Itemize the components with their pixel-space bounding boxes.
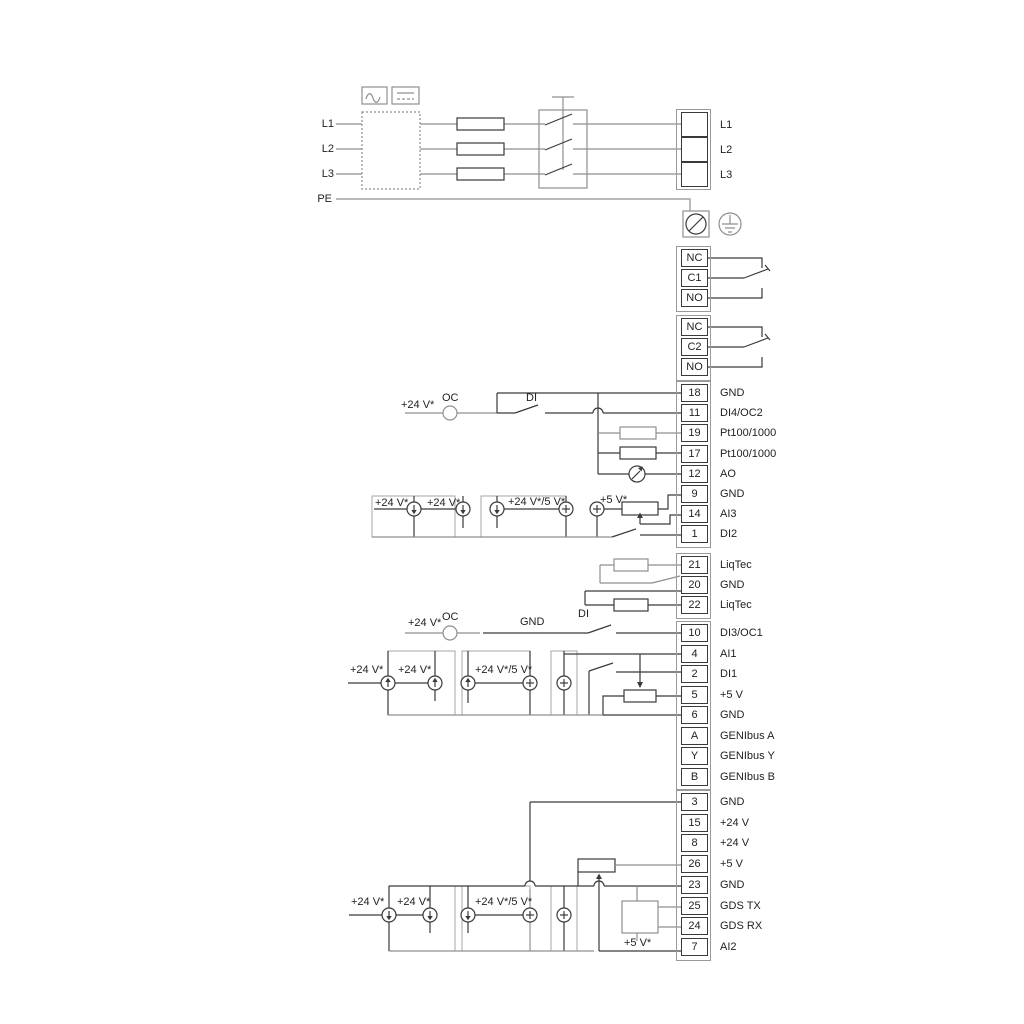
terminal-row: 5+5 V: [676, 686, 896, 704]
earth-symbol: [719, 213, 741, 235]
terminal-cell: A: [681, 727, 708, 745]
terminal-row: BGENIbus B: [676, 768, 896, 786]
terminal-cell: 5: [681, 686, 708, 704]
terminal-cell: 10: [681, 624, 708, 642]
terminal-label: GENIbus Y: [720, 750, 775, 762]
label-pe-in: PE: [310, 193, 332, 205]
terminal-row: 6GND: [676, 706, 896, 724]
terminal-cell: 19: [681, 424, 708, 442]
terminal-label: +5 V: [720, 858, 743, 870]
terminal-cell: 14: [681, 505, 708, 523]
label-plus24-ai1-2: +24 V*: [398, 664, 431, 676]
terminal-label: GND: [720, 579, 744, 591]
terminal-label: +5 V: [720, 689, 743, 701]
terminal-row: YGENIbus Y: [676, 747, 896, 765]
terminal-cell: NO: [681, 289, 708, 307]
label-plus24-di3: +24 V*: [408, 617, 441, 629]
label-plus24-ai3-2: +24 V*: [427, 497, 460, 509]
label-l2-in: L2: [312, 143, 334, 155]
terminal-cell: NC: [681, 318, 708, 336]
terminal-label: DI1: [720, 668, 737, 680]
terminal-cell: 18: [681, 384, 708, 402]
terminal-cell: 15: [681, 814, 708, 832]
terminal-cell: 4: [681, 645, 708, 663]
terminal-label: GND: [720, 709, 744, 721]
main-switch-blades: [545, 114, 572, 175]
label-plus24or5-ai3: +24 V*/5 V*: [508, 496, 565, 508]
label-oc-di3: OC: [442, 611, 459, 623]
terminal-label: AI3: [720, 508, 737, 520]
label-plus24or5-ai2: +24 V*/5 V*: [475, 896, 532, 908]
pt100-sensor-2: [598, 447, 683, 459]
terminal-row: 9GND: [676, 485, 896, 503]
terminal-label: L3: [720, 169, 732, 181]
terminal-row: 4AI1: [676, 645, 896, 663]
terminal-row: 22LiqTec: [676, 596, 896, 614]
ai1-potentiometer: [564, 654, 683, 715]
terminal-row: 10DI3/OC1: [676, 624, 896, 642]
terminal-cell: C2: [681, 338, 708, 356]
terminal-cell: [681, 137, 708, 162]
terminal-row: 19Pt100/1000: [676, 424, 896, 442]
label-di-di4: DI: [526, 392, 537, 404]
terminal-cell: 2: [681, 665, 708, 683]
fuses: [457, 118, 504, 180]
terminal-label: DI2: [720, 528, 737, 540]
label-plus24-ai2-2: +24 V*: [397, 896, 430, 908]
terminal-label: AO: [720, 468, 736, 480]
terminal-label: DI4/OC2: [720, 407, 763, 419]
terminal-label: AI2: [720, 941, 737, 953]
label-l1-in: L1: [312, 118, 334, 130]
terminal-label: +24 V: [720, 837, 749, 849]
terminal-cell: 24: [681, 917, 708, 935]
terminal-row: 15+24 V: [676, 814, 896, 832]
terminal-cell: 11: [681, 404, 708, 422]
label-di-di3: DI: [578, 608, 589, 620]
terminal-row: 17Pt100/1000: [676, 445, 896, 463]
terminal-cell: 6: [681, 706, 708, 724]
terminal-label: GND: [720, 879, 744, 891]
terminal-cell: 20: [681, 576, 708, 594]
terminal-row: L3: [676, 162, 896, 187]
terminal-cell: NO: [681, 358, 708, 376]
ac-symbol-box: [362, 87, 387, 104]
label-plus24-ai3-1: +24 V*: [375, 497, 408, 509]
terminal-row: 7AI2: [676, 938, 896, 956]
ai2-rail: [389, 881, 683, 886]
dc-symbol-box: [392, 87, 419, 104]
terminal-label: GND: [720, 488, 744, 500]
terminal-row: 24GDS RX: [676, 917, 896, 935]
terminal-row: NO: [676, 358, 896, 376]
gds-sensor: [622, 886, 683, 941]
terminal-cell: 12: [681, 465, 708, 483]
terminal-row: C2: [676, 338, 896, 356]
label-plus24-ai1-1: +24 V*: [350, 664, 383, 676]
liqtec-circuit: [585, 559, 683, 611]
terminal-cell: 26: [681, 855, 708, 873]
terminal-label: L1: [720, 119, 732, 131]
label-plus5-gds: +5 V*: [624, 937, 651, 949]
terminal-row: 1DI2: [676, 525, 896, 543]
analog-output-meter: [598, 466, 683, 482]
terminal-row: 11DI4/OC2: [676, 404, 896, 422]
terminal-cell: Y: [681, 747, 708, 765]
ai3-potentiometer: [622, 495, 683, 524]
terminal-label: LiqTec: [720, 559, 752, 571]
terminal-label: L2: [720, 144, 732, 156]
label-gnd-di3: GND: [520, 616, 544, 628]
pe-screw-terminal: [683, 211, 709, 237]
terminal-cell: 23: [681, 876, 708, 894]
label-plus24or5-ai1: +24 V*/5 V*: [475, 664, 532, 676]
label-plus24-ai2-1: +24 V*: [351, 896, 384, 908]
terminal-label: DI3/OC1: [720, 627, 763, 639]
terminal-row: 26+5 V: [676, 855, 896, 873]
terminal-row: 8+24 V: [676, 834, 896, 852]
terminal-row: 3GND: [676, 793, 896, 811]
terminal-row: NC: [676, 249, 896, 267]
terminal-label: +24 V: [720, 817, 749, 829]
terminal-cell: 3: [681, 793, 708, 811]
label-plus5-ai3: +5 V*: [600, 494, 627, 506]
terminal-row: 2DI1: [676, 665, 896, 683]
terminal-cell: [681, 112, 708, 137]
terminal-cell: C1: [681, 269, 708, 287]
terminal-label: GENIbus B: [720, 771, 775, 783]
terminal-row: L2: [676, 137, 896, 162]
pt100-sensor-1: [598, 427, 683, 439]
terminal-row: L1: [676, 112, 896, 137]
terminal-cell: [681, 162, 708, 187]
terminal-label: GENIbus A: [720, 730, 774, 742]
terminal-cell: NC: [681, 249, 708, 267]
terminal-cell: 9: [681, 485, 708, 503]
terminal-label: AI1: [720, 648, 737, 660]
emc-filter-box: [362, 112, 420, 189]
terminal-cell: 7: [681, 938, 708, 956]
terminal-row: AGENIbus A: [676, 727, 896, 745]
terminal-row: 12AO: [676, 465, 896, 483]
di2-switch: [372, 529, 683, 537]
ai1-sources: [348, 651, 571, 715]
terminal-row: 25GDS TX: [676, 897, 896, 915]
terminal-cell: 1: [681, 525, 708, 543]
terminal-row: NO: [676, 289, 896, 307]
ai3-sources: [374, 496, 622, 537]
terminal-cell: 17: [681, 445, 708, 463]
terminal-row: NC: [676, 318, 896, 336]
terminal-row: 23GND: [676, 876, 896, 894]
terminal-row: 14AI3: [676, 505, 896, 523]
terminal-row: 20GND: [676, 576, 896, 594]
terminal-label: GND: [720, 796, 744, 808]
terminal-label: GND: [720, 387, 744, 399]
terminal-label: GDS TX: [720, 900, 761, 912]
pump-wiring-diagram: L1L2L3 NCC1NO NCC2NO 18GND11DI4/OC219Pt1…: [0, 0, 1024, 1024]
terminal-label: GDS RX: [720, 920, 762, 932]
terminal-row: C1: [676, 269, 896, 287]
label-plus24-di4: +24 V*: [401, 399, 434, 411]
gnd3-wire: [530, 802, 683, 951]
terminal-row: 18GND: [676, 384, 896, 402]
terminal-cell: 8: [681, 834, 708, 852]
terminal-label: Pt100/1000: [720, 448, 776, 460]
terminal-cell: 22: [681, 596, 708, 614]
terminal-cell: B: [681, 768, 708, 786]
terminal-label: Pt100/1000: [720, 427, 776, 439]
terminal-row: 21LiqTec: [676, 556, 896, 574]
mains-input-wires: [336, 124, 690, 212]
terminal-label: LiqTec: [720, 599, 752, 611]
label-l3-in: L3: [312, 168, 334, 180]
label-oc-di4: OC: [442, 392, 459, 404]
terminal-cell: 25: [681, 897, 708, 915]
terminal-cell: 21: [681, 556, 708, 574]
